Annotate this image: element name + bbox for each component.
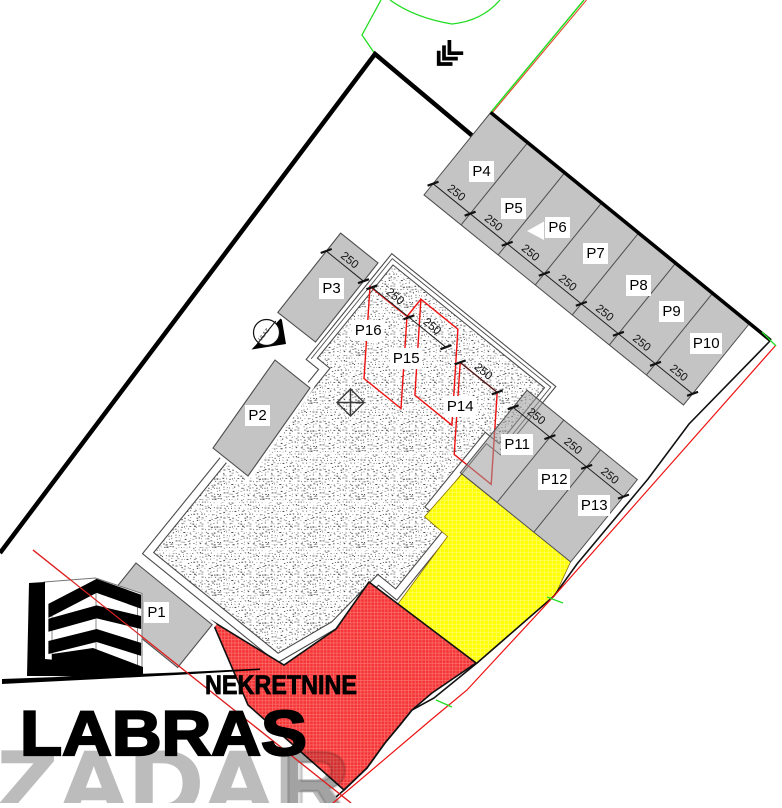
svg-text:P10: P10 (693, 335, 720, 352)
svg-text:P16: P16 (355, 322, 382, 339)
svg-text:P13: P13 (581, 497, 608, 514)
svg-text:P5: P5 (504, 200, 522, 217)
svg-text:P6: P6 (548, 219, 566, 236)
svg-text:P15: P15 (393, 350, 420, 367)
svg-text:P4: P4 (472, 163, 490, 180)
svg-text:P12: P12 (541, 471, 568, 488)
svg-text:P11: P11 (504, 436, 530, 453)
svg-text:P7: P7 (586, 245, 604, 262)
svg-text:P9: P9 (662, 303, 680, 320)
svg-text:NEKRETNINE: NEKRETNINE (205, 670, 357, 700)
svg-text:LABRAS: LABRAS (20, 699, 307, 769)
svg-text:P8: P8 (629, 277, 647, 294)
svg-text:P1: P1 (147, 604, 165, 621)
svg-text:P2: P2 (248, 407, 266, 424)
svg-text:P3: P3 (322, 280, 340, 297)
svg-text:P14: P14 (447, 398, 474, 415)
